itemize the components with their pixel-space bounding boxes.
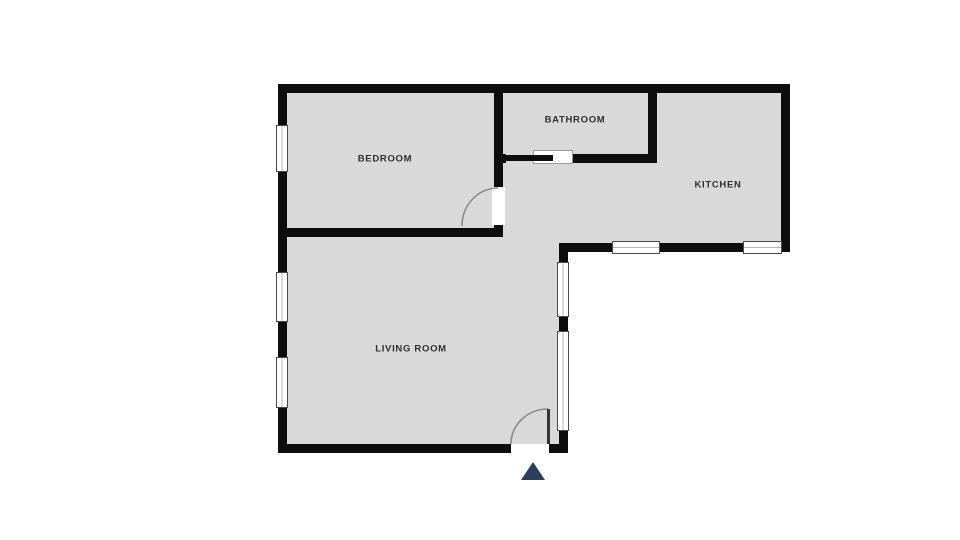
window-living-right-1 (557, 262, 569, 317)
bathroom-sliding-door-bar (502, 155, 553, 161)
floor-area-left (278, 84, 568, 453)
wall-bottom-left (278, 444, 511, 453)
wall-bedroom-bottom (278, 228, 503, 237)
window-bedroom-left (276, 125, 288, 172)
window-kitchen-2 (743, 241, 782, 254)
window-living-right-2 (557, 331, 569, 431)
wall-top (278, 84, 790, 93)
bathroom-label: BATHROOM (545, 115, 606, 126)
wall-living-right-2 (559, 317, 568, 331)
wall-kitchen-right (781, 84, 790, 252)
bedroom-label: BEDROOM (358, 154, 413, 165)
floor-area-right (568, 84, 790, 252)
wall-bedroom-right-upper (494, 84, 503, 187)
living-room-label: LIVING ROOM (375, 344, 447, 355)
wall-kitchen-bottom-2 (660, 243, 743, 252)
wall-living-right-1 (559, 243, 568, 262)
wall-living-right-3 (559, 431, 568, 453)
bedroom-door-opening (492, 187, 505, 225)
window-living-left-2 (276, 357, 288, 408)
window-living-left-1 (276, 272, 288, 322)
entry-door-opening (511, 444, 549, 453)
window-kitchen-1 (612, 241, 660, 254)
entrance-marker-icon (521, 462, 545, 480)
entry-door-leaf (547, 409, 550, 444)
wall-bathroom-bottom (573, 154, 657, 163)
kitchen-label: KITCHEN (694, 180, 741, 191)
wall-kitchen-bottom-3 (782, 243, 790, 252)
wall-bathroom-right (648, 84, 657, 163)
floor-plan: BEDROOM BATHROOM KITCHEN LIVING ROOM (0, 0, 960, 540)
